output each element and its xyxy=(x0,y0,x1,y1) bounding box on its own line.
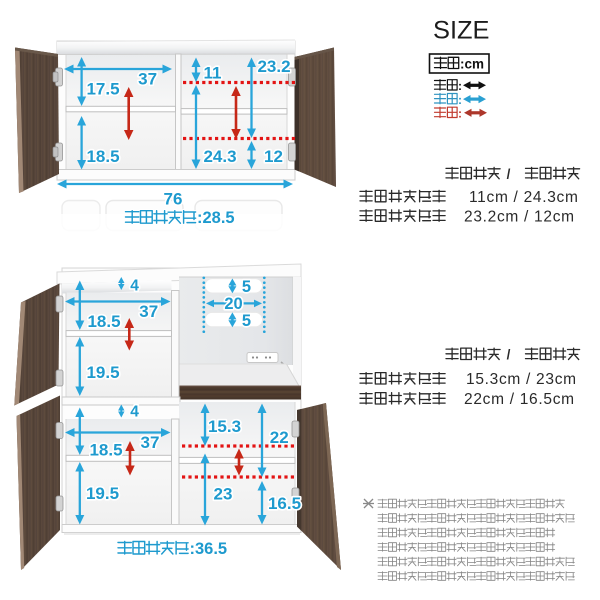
svg-text:20: 20 xyxy=(224,295,242,313)
svg-text:5: 5 xyxy=(242,312,251,330)
svg-text::: : xyxy=(458,79,462,93)
svg-text:76: 76 xyxy=(164,189,183,208)
svg-text:19.5: 19.5 xyxy=(86,484,119,503)
svg-text:15.3cm / 23cm: 15.3cm / 23cm xyxy=(466,371,577,388)
svg-text:23.2: 23.2 xyxy=(257,57,290,76)
svg-text:37: 37 xyxy=(141,433,160,452)
svg-text:18.5: 18.5 xyxy=(87,312,120,331)
svg-text::: : xyxy=(458,93,462,107)
svg-text:37: 37 xyxy=(139,302,158,321)
svg-text:12: 12 xyxy=(264,147,283,166)
svg-text::: : xyxy=(458,107,462,121)
svg-text:15.3: 15.3 xyxy=(208,417,241,436)
svg-text:18.5: 18.5 xyxy=(86,147,119,166)
svg-text::28.5: :28.5 xyxy=(197,209,235,227)
svg-text:/: / xyxy=(507,167,511,182)
svg-text:23: 23 xyxy=(214,484,233,503)
svg-text:17.5: 17.5 xyxy=(86,79,119,98)
svg-text:37: 37 xyxy=(138,70,157,89)
svg-text:23.2cm / 12cm: 23.2cm / 12cm xyxy=(464,208,575,225)
svg-text:22cm / 16.5cm: 22cm / 16.5cm xyxy=(464,391,575,408)
svg-text:4: 4 xyxy=(130,277,139,294)
svg-text:4: 4 xyxy=(130,404,139,421)
svg-text:16.5: 16.5 xyxy=(268,494,301,513)
svg-text:5: 5 xyxy=(242,278,251,296)
svg-text:18.5: 18.5 xyxy=(89,440,122,459)
svg-text::36.5: :36.5 xyxy=(190,540,228,558)
svg-text:11cm / 24.3cm: 11cm / 24.3cm xyxy=(469,189,579,206)
svg-text:24.3: 24.3 xyxy=(203,147,236,166)
svg-text:/: / xyxy=(507,347,511,362)
svg-text:22: 22 xyxy=(270,428,289,447)
svg-text:11: 11 xyxy=(204,63,222,82)
svg-text::cm: :cm xyxy=(460,57,484,72)
svg-text:SIZE: SIZE xyxy=(433,17,490,45)
svg-text:19.5: 19.5 xyxy=(86,363,119,382)
